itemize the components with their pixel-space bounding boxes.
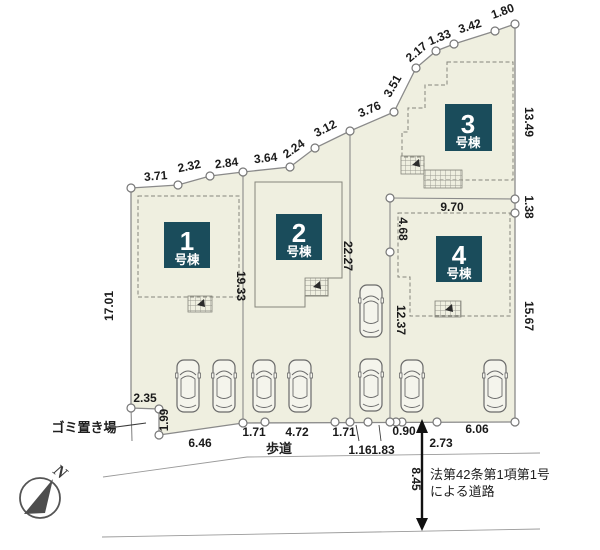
- building-3-number: 3: [461, 109, 475, 139]
- dim-bottom-6: 0.90: [392, 424, 416, 438]
- dim-bottom-4: 1.16: [348, 443, 372, 457]
- building-1-suffix: 号棟: [174, 252, 200, 267]
- road-note-line2: による道路: [430, 484, 495, 499]
- dim-leader-2: [379, 425, 381, 441]
- dim-lot4-top: 9.70: [440, 200, 464, 214]
- dim-trash-height: 1.99: [159, 409, 171, 431]
- dim-top-10: 3.42: [457, 16, 484, 36]
- dim-top-1: 2.32: [176, 157, 202, 176]
- building-4-label: 4 号棟: [436, 236, 482, 282]
- building-2-number: 2: [292, 218, 306, 248]
- dim-lot1-right: 19.33: [234, 271, 248, 301]
- building-4-number: 4: [452, 240, 467, 270]
- dim-road-width: 8.45: [409, 467, 423, 491]
- building-3-porch-b: [424, 170, 462, 188]
- compass: N: [20, 460, 72, 518]
- dim-bottom-1: 1.71: [242, 425, 266, 439]
- car-icon: [252, 360, 277, 412]
- car-icon: [288, 360, 313, 412]
- dim-top-3: 3.64: [253, 150, 278, 166]
- dim-top-7: 3.51: [381, 72, 405, 100]
- building-3-label: 3 号棟: [445, 104, 492, 151]
- dim-top-11: 1.80: [489, 1, 516, 22]
- dim-bottom-8: 6.06: [465, 422, 489, 436]
- building-1-label: 1 号棟: [164, 222, 210, 268]
- road-note-line1: 法第42条第1項第1号: [430, 467, 550, 482]
- dim-right-lower: 15.67: [522, 301, 536, 331]
- dim-bottom-2: 4.72: [285, 425, 309, 439]
- dim-trash-width: 2.35: [133, 391, 157, 405]
- dim-leader-1: [356, 425, 359, 441]
- sidewalk-label: 歩道: [266, 441, 292, 456]
- site-plan-canvas: 1 号棟 2 号棟 3 号棟 4 号棟: [0, 0, 600, 550]
- dim-lot4-left-upper: 4.68: [396, 217, 410, 241]
- dim-top-6: 3.76: [356, 98, 383, 120]
- car-icon: [400, 360, 425, 412]
- dim-bottom-0: 6.46: [188, 436, 212, 450]
- dim-top-5: 3.12: [312, 117, 339, 140]
- bottom-dimensions: 6.46 1.71 4.72 1.71 1.16 1.83 0.90 2.73 …: [188, 422, 489, 457]
- dim-lot2-right: 22.27: [341, 241, 355, 271]
- dim-top-0: 3.71: [143, 168, 168, 184]
- north-needle-icon: [24, 479, 53, 514]
- road-far-edge-line: [102, 529, 540, 537]
- building-4-suffix: 号棟: [446, 266, 472, 281]
- building-2-label: 2 号棟: [276, 214, 322, 260]
- trash-area-label: ゴミ置き場: [51, 420, 116, 435]
- dim-bottom-7: 2.73: [429, 436, 453, 450]
- dim-bottom-5: 1.83: [371, 443, 395, 457]
- car-icon: [176, 360, 201, 412]
- dim-bottom-3: 1.71: [332, 425, 356, 439]
- building-2-suffix: 号棟: [286, 244, 312, 259]
- car-icon: [359, 285, 384, 337]
- site-plan-svg: 1 号棟 2 号棟 3 号棟 4 号棟: [0, 0, 600, 550]
- dim-right-mid: 1.38: [522, 195, 536, 219]
- car-icon: [212, 360, 237, 412]
- building-3-suffix: 号棟: [455, 135, 481, 150]
- dim-left-17-01: 17.01: [102, 291, 116, 321]
- dim-top-2: 2.84: [214, 155, 239, 172]
- car-icon: [483, 360, 508, 412]
- building-1-number: 1: [180, 226, 194, 256]
- dim-top-9: 1.33: [426, 26, 453, 48]
- dim-right-upper: 13.49: [522, 107, 536, 137]
- dim-lot4-left-lower: 12.37: [394, 305, 408, 335]
- car-icon: [359, 359, 384, 411]
